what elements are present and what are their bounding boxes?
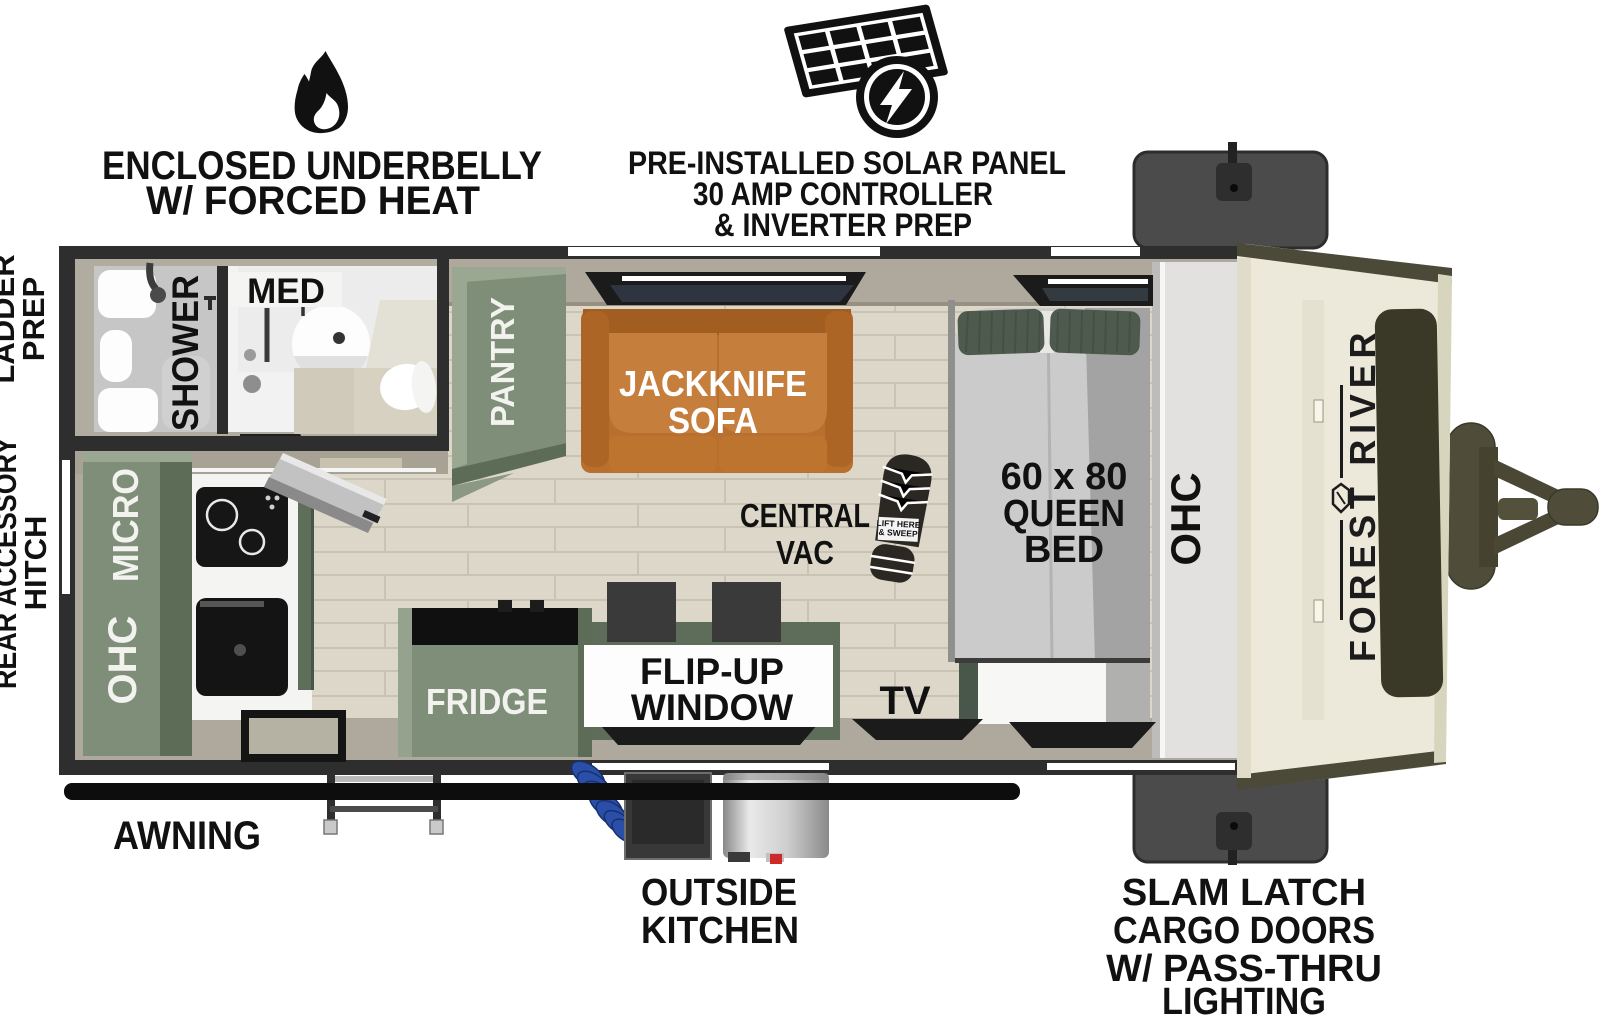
svg-text:PREP: PREP bbox=[16, 277, 51, 361]
svg-text:CARGO DOORS: CARGO DOORS bbox=[1113, 910, 1375, 952]
svg-text:KITCHEN: KITCHEN bbox=[641, 910, 799, 952]
svg-text:WINDOW: WINDOW bbox=[631, 687, 793, 728]
svg-text:60 x 80: 60 x 80 bbox=[1001, 456, 1128, 498]
svg-text:OUTSIDE: OUTSIDE bbox=[641, 872, 797, 914]
svg-text:& INVERTER PREP: & INVERTER PREP bbox=[714, 207, 972, 243]
svg-text:BED: BED bbox=[1024, 529, 1104, 571]
svg-text:MICRO: MICRO bbox=[105, 468, 146, 582]
svg-text:FRIDGE: FRIDGE bbox=[426, 681, 548, 722]
svg-text:MED: MED bbox=[247, 272, 325, 311]
svg-text:LIGHTING: LIGHTING bbox=[1162, 981, 1326, 1017]
svg-text:FLIP-UP: FLIP-UP bbox=[640, 651, 784, 692]
svg-text:HITCH: HITCH bbox=[18, 516, 53, 611]
svg-text:CENTRAL: CENTRAL bbox=[740, 497, 870, 534]
svg-text:JACKKNIFE: JACKKNIFE bbox=[619, 363, 807, 404]
svg-text:SOFA: SOFA bbox=[668, 400, 758, 441]
svg-text:AWNING: AWNING bbox=[113, 814, 261, 858]
svg-text:TV: TV bbox=[879, 679, 930, 723]
svg-text:OHC: OHC bbox=[101, 616, 145, 705]
svg-text:SHOWER: SHOWER bbox=[165, 275, 206, 431]
svg-text:& SWEEP: & SWEEP bbox=[878, 527, 918, 539]
svg-text:W/ FORCED HEAT: W/ FORCED HEAT bbox=[146, 179, 480, 223]
svg-text:OHC: OHC bbox=[1162, 472, 1209, 565]
svg-text:VAC: VAC bbox=[776, 534, 834, 571]
svg-text:PANTRY: PANTRY bbox=[484, 297, 521, 427]
svg-text:SLAM LATCH: SLAM LATCH bbox=[1122, 872, 1366, 914]
